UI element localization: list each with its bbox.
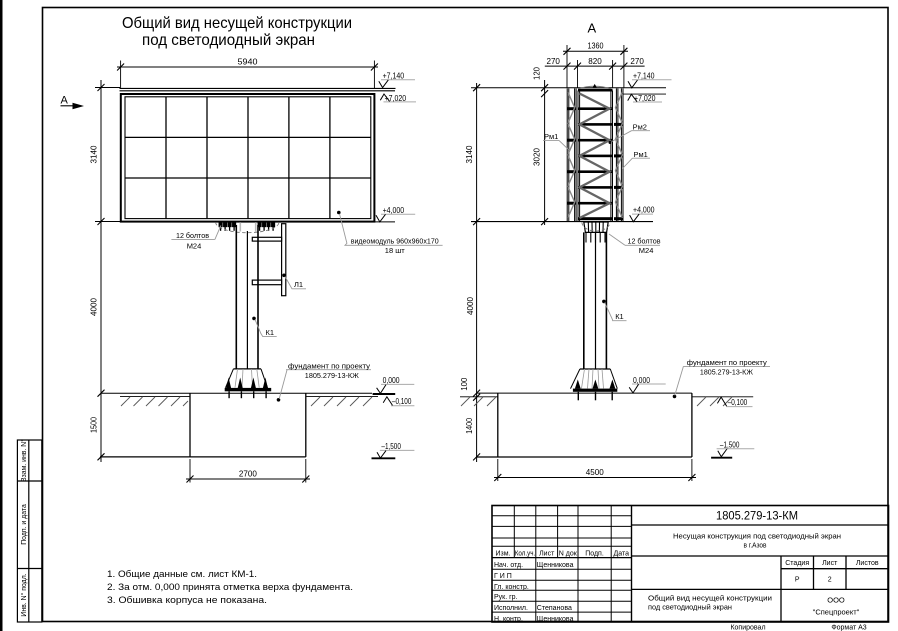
svg-text:3. Обшивка корпуса не показана: 3. Обшивка корпуса не показана. xyxy=(107,595,267,605)
svg-text:Инв. N° подл.: Инв. N° подл. xyxy=(20,573,28,616)
svg-text:Р: Р xyxy=(795,577,800,584)
svg-text:фундамент по проекту: фундамент по проекту xyxy=(687,358,767,367)
svg-text:Стадия: Стадия xyxy=(785,560,809,567)
svg-text:–0,100: –0,100 xyxy=(728,397,748,407)
svg-text:К1: К1 xyxy=(615,312,624,321)
svg-text:270: 270 xyxy=(630,56,644,66)
svg-text:1360: 1360 xyxy=(588,41,604,51)
svg-text:М24: М24 xyxy=(187,241,202,250)
svg-text:Щенникова: Щенникова xyxy=(537,616,574,623)
svg-text:4000: 4000 xyxy=(89,298,99,316)
svg-text:Подп.: Подп. xyxy=(585,551,604,558)
svg-text:+7,140: +7,140 xyxy=(633,70,655,80)
svg-text:1500: 1500 xyxy=(89,417,99,433)
svg-text:Общий вид несущей конструкции: Общий вид несущей конструкции xyxy=(648,594,772,603)
svg-text:3020: 3020 xyxy=(531,148,541,166)
svg-text:К1: К1 xyxy=(266,328,275,337)
svg-text:Гл. констр.: Гл. констр. xyxy=(494,584,529,591)
svg-text:–1,500: –1,500 xyxy=(720,439,740,449)
svg-text:Л1: Л1 xyxy=(294,280,303,289)
svg-text:Нач. отд.: Нач. отд. xyxy=(494,562,523,569)
svg-text:Г И П: Г И П xyxy=(494,573,512,580)
svg-text:Кол.уч.: Кол.уч. xyxy=(515,551,536,558)
svg-text:N док: N док xyxy=(559,551,578,558)
svg-text:под светодиодный экран: под светодиодный экран xyxy=(142,32,315,49)
svg-text:1805.279-13-КЖ: 1805.279-13-КЖ xyxy=(305,371,359,380)
svg-text:0,000: 0,000 xyxy=(383,375,400,385)
svg-text:3140: 3140 xyxy=(89,145,99,163)
svg-text:Общий вид несущей конструкции: Общий вид несущей конструкции xyxy=(122,15,352,32)
svg-text:Дата: Дата xyxy=(614,551,630,558)
svg-text:ООО: ООО xyxy=(827,596,845,605)
svg-text:Лист: Лист xyxy=(539,551,555,558)
svg-text:820: 820 xyxy=(588,56,602,66)
svg-text:Исполнил.: Исполнил. xyxy=(494,605,528,612)
svg-text:"Спецпроект": "Спецпроект" xyxy=(813,608,860,617)
svg-text:1805.279-13-КМ: 1805.279-13-КМ xyxy=(716,509,798,523)
svg-text:Степанова: Степанова xyxy=(537,605,572,612)
svg-text:Рм2: Рм2 xyxy=(633,122,647,131)
svg-text:Щенникова: Щенникова xyxy=(537,562,574,569)
svg-text:под светодиодный экран: под светодиодный экран xyxy=(648,603,732,612)
svg-text:Рм1: Рм1 xyxy=(544,132,558,141)
svg-text:+7,140: +7,140 xyxy=(383,70,405,80)
svg-text:270: 270 xyxy=(546,56,560,66)
svg-text:1805.279-13-КЖ: 1805.279-13-КЖ xyxy=(700,368,753,377)
svg-text:Н. контр.: Н. контр. xyxy=(494,616,523,623)
svg-text:2700: 2700 xyxy=(239,468,257,478)
svg-text:1. Общие данные см. лист КМ-1.: 1. Общие данные см. лист КМ-1. xyxy=(107,569,257,579)
svg-text:А: А xyxy=(61,95,69,107)
svg-text:+4,000: +4,000 xyxy=(383,205,405,215)
svg-text:18 шт: 18 шт xyxy=(385,246,405,255)
svg-text:3140: 3140 xyxy=(464,145,474,163)
svg-text:Лист: Лист xyxy=(822,560,838,567)
svg-text:1400: 1400 xyxy=(464,418,474,434)
svg-text:4000: 4000 xyxy=(465,297,475,315)
svg-text:М24: М24 xyxy=(639,246,654,255)
svg-text:120: 120 xyxy=(532,67,542,80)
svg-text:4500: 4500 xyxy=(586,467,604,477)
svg-text:Формат А3: Формат А3 xyxy=(831,625,866,631)
svg-text:–1,500: –1,500 xyxy=(381,441,401,451)
svg-text:А: А xyxy=(588,21,597,36)
svg-text:–0,100: –0,100 xyxy=(392,396,412,406)
svg-text:12 болтов: 12 болтов xyxy=(176,231,209,240)
svg-text:Листов: Листов xyxy=(856,560,879,567)
svg-text:0,000: 0,000 xyxy=(633,375,650,385)
svg-text:Рук. гр.: Рук. гр. xyxy=(494,594,518,601)
svg-text:2: 2 xyxy=(828,577,832,584)
svg-text:Несущая конструкция под светод: Несущая конструкция под светодиодный экр… xyxy=(673,532,841,541)
svg-text:100: 100 xyxy=(459,377,469,390)
svg-text:видеомодуль 960х960х170: видеомодуль 960х960х170 xyxy=(351,236,439,245)
svg-text:Подп. и дата: Подп. и дата xyxy=(21,504,28,545)
svg-text:+7,020: +7,020 xyxy=(385,93,407,103)
svg-text:фундамент по проекту: фундамент по проекту xyxy=(288,361,370,370)
svg-text:+4,000: +4,000 xyxy=(633,205,655,215)
svg-text:Взам. инв. N°: Взам. инв. N° xyxy=(20,439,28,482)
svg-text:12 болтов: 12 болтов xyxy=(628,237,661,246)
svg-text:Копировал: Копировал xyxy=(730,625,765,631)
svg-text:Изм.: Изм. xyxy=(496,551,511,558)
svg-text:Рм1: Рм1 xyxy=(634,150,648,159)
svg-text:2. За отм. 0,000 принята отмет: 2. За отм. 0,000 принята отметка верха ф… xyxy=(107,582,353,592)
svg-text:в г.Азов: в г.Азов xyxy=(744,541,767,550)
svg-text:5940: 5940 xyxy=(238,56,258,66)
